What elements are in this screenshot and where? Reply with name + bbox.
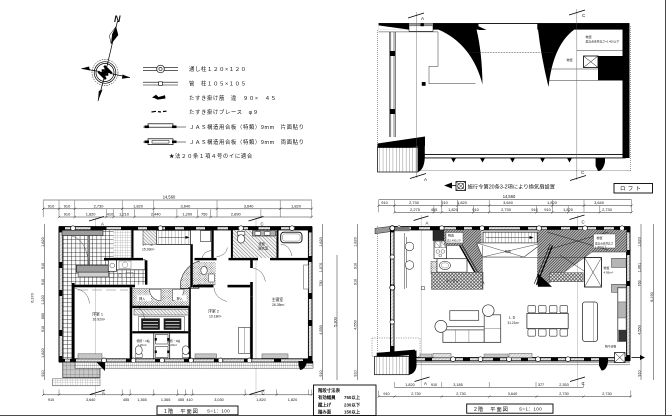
svg-text:5,300: 5,300 xyxy=(334,317,338,327)
svg-text:10.92m²: 10.92m² xyxy=(93,318,106,322)
svg-text:455: 455 xyxy=(178,398,184,402)
svg-text:ＪＡＳ構造用合板（特類）9mm 片面貼り: ＪＡＳ構造用合板（特類）9mm 片面貼り xyxy=(189,123,305,131)
svg-text:物干金物: 物干金物 xyxy=(605,345,616,349)
svg-text:910: 910 xyxy=(64,211,71,216)
svg-text:階段寸法表: 階段寸法表 xyxy=(318,387,341,394)
svg-text:1,820: 1,820 xyxy=(291,203,302,208)
svg-text:1,820: 1,820 xyxy=(288,398,298,402)
svg-text:通し柱１２０×１２０: 通し柱１２０×１２０ xyxy=(189,65,247,73)
svg-text:3,030: 3,030 xyxy=(214,398,224,402)
svg-text:2,730: 2,730 xyxy=(411,392,421,396)
svg-text:吹抜: 吹抜 xyxy=(505,249,511,254)
svg-text:910: 910 xyxy=(431,383,437,387)
svg-text:ＬＤ: ＬＤ xyxy=(509,316,516,320)
svg-text:763: 763 xyxy=(638,280,642,286)
svg-text:S=1：100: S=1：100 xyxy=(207,409,230,414)
svg-text:踏み面: 踏み面 xyxy=(318,409,332,416)
svg-text:910: 910 xyxy=(41,279,45,285)
svg-text:洋室 1: 洋室 1 xyxy=(92,312,103,317)
svg-text:1,220: 1,220 xyxy=(41,295,45,305)
svg-text:910: 910 xyxy=(41,263,45,269)
svg-text:910: 910 xyxy=(354,279,358,285)
svg-text:4,550: 4,550 xyxy=(638,325,642,335)
svg-text:押入: 押入 xyxy=(177,296,184,301)
svg-text:2,440: 2,440 xyxy=(151,211,162,216)
svg-text:ロフト: ロフト xyxy=(620,186,643,193)
svg-text:1,820: 1,820 xyxy=(256,398,266,402)
svg-text:910: 910 xyxy=(638,370,642,376)
svg-text:377: 377 xyxy=(538,383,544,387)
svg-text:ＪＡＳ構造用合板（特類）9mm 両面貼り: ＪＡＳ構造用合板（特類）9mm 両面貼り xyxy=(189,138,305,146)
svg-text:3,640: 3,640 xyxy=(86,398,96,402)
svg-text:★法２０条１項４号のイに適合: ★法２０条１項４号のイに適合 xyxy=(169,152,253,160)
svg-text:物置: 物置 xyxy=(597,235,603,240)
svg-text:3,185: 3,185 xyxy=(453,383,463,387)
svg-text:2,275: 2,275 xyxy=(410,207,420,212)
svg-text:押入: 押入 xyxy=(139,296,146,301)
svg-text:3,640: 3,640 xyxy=(503,200,514,205)
svg-text:31.21m²: 31.21m² xyxy=(508,321,520,325)
svg-text:3,640: 3,640 xyxy=(181,203,192,208)
svg-text:脱衣室: 脱衣室 xyxy=(259,246,269,251)
svg-text:管 柱１０５×１０５: 管 柱１０５×１０５ xyxy=(189,80,247,88)
svg-text:910: 910 xyxy=(354,370,358,376)
svg-text:施行令第20条3-2項により換気扇設置: 施行令第20条3-2項により換気扇設置 xyxy=(468,182,556,190)
svg-text:910: 910 xyxy=(319,370,323,376)
svg-text:高1,400以下: 高1,400以下 xyxy=(447,238,462,242)
svg-text:1,820: 1,820 xyxy=(133,203,144,208)
svg-text:910: 910 xyxy=(48,203,55,208)
svg-text:1,365: 1,365 xyxy=(161,398,171,402)
svg-text:2,730: 2,730 xyxy=(559,392,569,396)
svg-text:26.35m²: 26.35m² xyxy=(272,303,285,307)
svg-text:物置: 物置 xyxy=(604,265,610,270)
svg-text:6,370: 6,370 xyxy=(31,293,35,303)
svg-text:910: 910 xyxy=(383,392,389,396)
svg-text:4,550: 4,550 xyxy=(319,325,323,335)
svg-text:2,730: 2,730 xyxy=(602,207,613,212)
svg-text:蹴上げ: 蹴上げ xyxy=(318,401,332,408)
svg-text:910: 910 xyxy=(64,203,71,208)
svg-text:1階 平面図: 1階 平面図 xyxy=(164,407,199,415)
svg-text:A: A xyxy=(101,222,104,227)
svg-text:750以上: 750以上 xyxy=(344,394,361,401)
svg-text:A: A xyxy=(426,220,429,225)
svg-text:4.95m²: 4.95m² xyxy=(604,271,613,275)
svg-text:910: 910 xyxy=(381,200,388,205)
svg-text:C: C xyxy=(582,220,585,225)
svg-text:1,820: 1,820 xyxy=(638,237,642,247)
svg-text:1,820: 1,820 xyxy=(86,211,97,216)
svg-text:洋室 2: 洋室 2 xyxy=(208,309,219,314)
svg-text:1,061: 1,061 xyxy=(638,263,642,273)
svg-text:910: 910 xyxy=(41,326,45,332)
svg-text:2,353: 2,353 xyxy=(559,383,569,387)
svg-text:2,730: 2,730 xyxy=(456,392,466,396)
svg-text:A: A xyxy=(424,381,427,386)
svg-text:3,640: 3,640 xyxy=(508,392,518,396)
svg-text:1,820: 1,820 xyxy=(563,207,574,212)
svg-text:有効幅員: 有効幅員 xyxy=(318,394,336,401)
svg-text:910: 910 xyxy=(48,398,54,402)
svg-text:2,730: 2,730 xyxy=(602,392,612,396)
svg-text:1,070: 1,070 xyxy=(319,263,323,273)
svg-text:A: A xyxy=(421,16,424,21)
svg-text:2,730: 2,730 xyxy=(94,203,105,208)
svg-text:150以上: 150以上 xyxy=(344,409,361,416)
svg-text:455: 455 xyxy=(123,398,129,402)
svg-text:S=1：100: S=1：100 xyxy=(519,407,542,412)
svg-text:C: C xyxy=(262,391,265,396)
svg-text:8,190: 8,190 xyxy=(650,292,654,302)
svg-text:1,820: 1,820 xyxy=(405,383,415,387)
svg-text:1,820: 1,820 xyxy=(41,348,45,358)
svg-text:1,820: 1,820 xyxy=(354,237,358,247)
svg-text:14,560: 14,560 xyxy=(503,194,516,199)
svg-text:2,890: 2,890 xyxy=(231,211,242,216)
svg-text:910: 910 xyxy=(544,207,551,212)
svg-text:3,640: 3,640 xyxy=(244,203,255,208)
svg-text:1,200: 1,200 xyxy=(182,211,193,216)
svg-text:4,550: 4,550 xyxy=(354,320,358,330)
svg-text:C: C xyxy=(582,381,585,386)
svg-text:750: 750 xyxy=(319,280,323,286)
svg-text:15.93m²: 15.93m² xyxy=(142,248,155,252)
svg-text:2階 平面図: 2階 平面図 xyxy=(474,405,509,413)
svg-text:1,400以下: 1,400以下 xyxy=(595,245,607,249)
svg-text:たすき掛けブレース φ９: たすき掛けブレース φ９ xyxy=(189,108,259,116)
svg-text:洗面: 洗面 xyxy=(259,241,265,246)
svg-text:2,730: 2,730 xyxy=(409,200,420,205)
svg-text:410: 410 xyxy=(186,398,192,402)
svg-text:750: 750 xyxy=(201,211,208,216)
svg-text:C: C xyxy=(261,222,264,227)
svg-text:1,210: 1,210 xyxy=(119,211,130,216)
svg-text:A: A xyxy=(102,391,105,396)
svg-text:1,365: 1,365 xyxy=(137,398,147,402)
svg-text:最高点天井高さ=1.400以下: 最高点天井高さ=1.400以下 xyxy=(586,40,620,44)
svg-text:1.20m²: 1.20m² xyxy=(168,343,177,347)
svg-text:230以下: 230以下 xyxy=(344,401,361,408)
svg-text:A: A xyxy=(424,177,427,182)
svg-text:600: 600 xyxy=(41,313,45,319)
svg-text:910: 910 xyxy=(354,263,358,269)
svg-text:10.18m²: 10.18m² xyxy=(209,315,222,319)
svg-text:物置: 物置 xyxy=(567,57,573,62)
svg-text:1,820: 1,820 xyxy=(41,237,45,247)
svg-text:物置: 物置 xyxy=(448,233,454,238)
svg-text:14,560: 14,560 xyxy=(163,195,176,200)
svg-text:物置: 物置 xyxy=(586,34,592,39)
svg-text:1,820: 1,820 xyxy=(319,237,323,247)
svg-text:1,820: 1,820 xyxy=(448,207,459,212)
svg-text:2,730: 2,730 xyxy=(501,207,512,212)
svg-text:キッチン: キッチン xyxy=(446,278,459,283)
svg-text:主寝室: 主寝室 xyxy=(272,297,284,302)
svg-text:たすき掛け筋 違 ９０× ４５: たすき掛け筋 違 ９０× ４５ xyxy=(189,94,277,102)
svg-text:3,640: 3,640 xyxy=(594,200,605,205)
svg-text:910: 910 xyxy=(41,370,45,376)
svg-text:410: 410 xyxy=(107,211,114,216)
svg-text:910: 910 xyxy=(441,200,448,205)
svg-text:910: 910 xyxy=(531,207,538,212)
